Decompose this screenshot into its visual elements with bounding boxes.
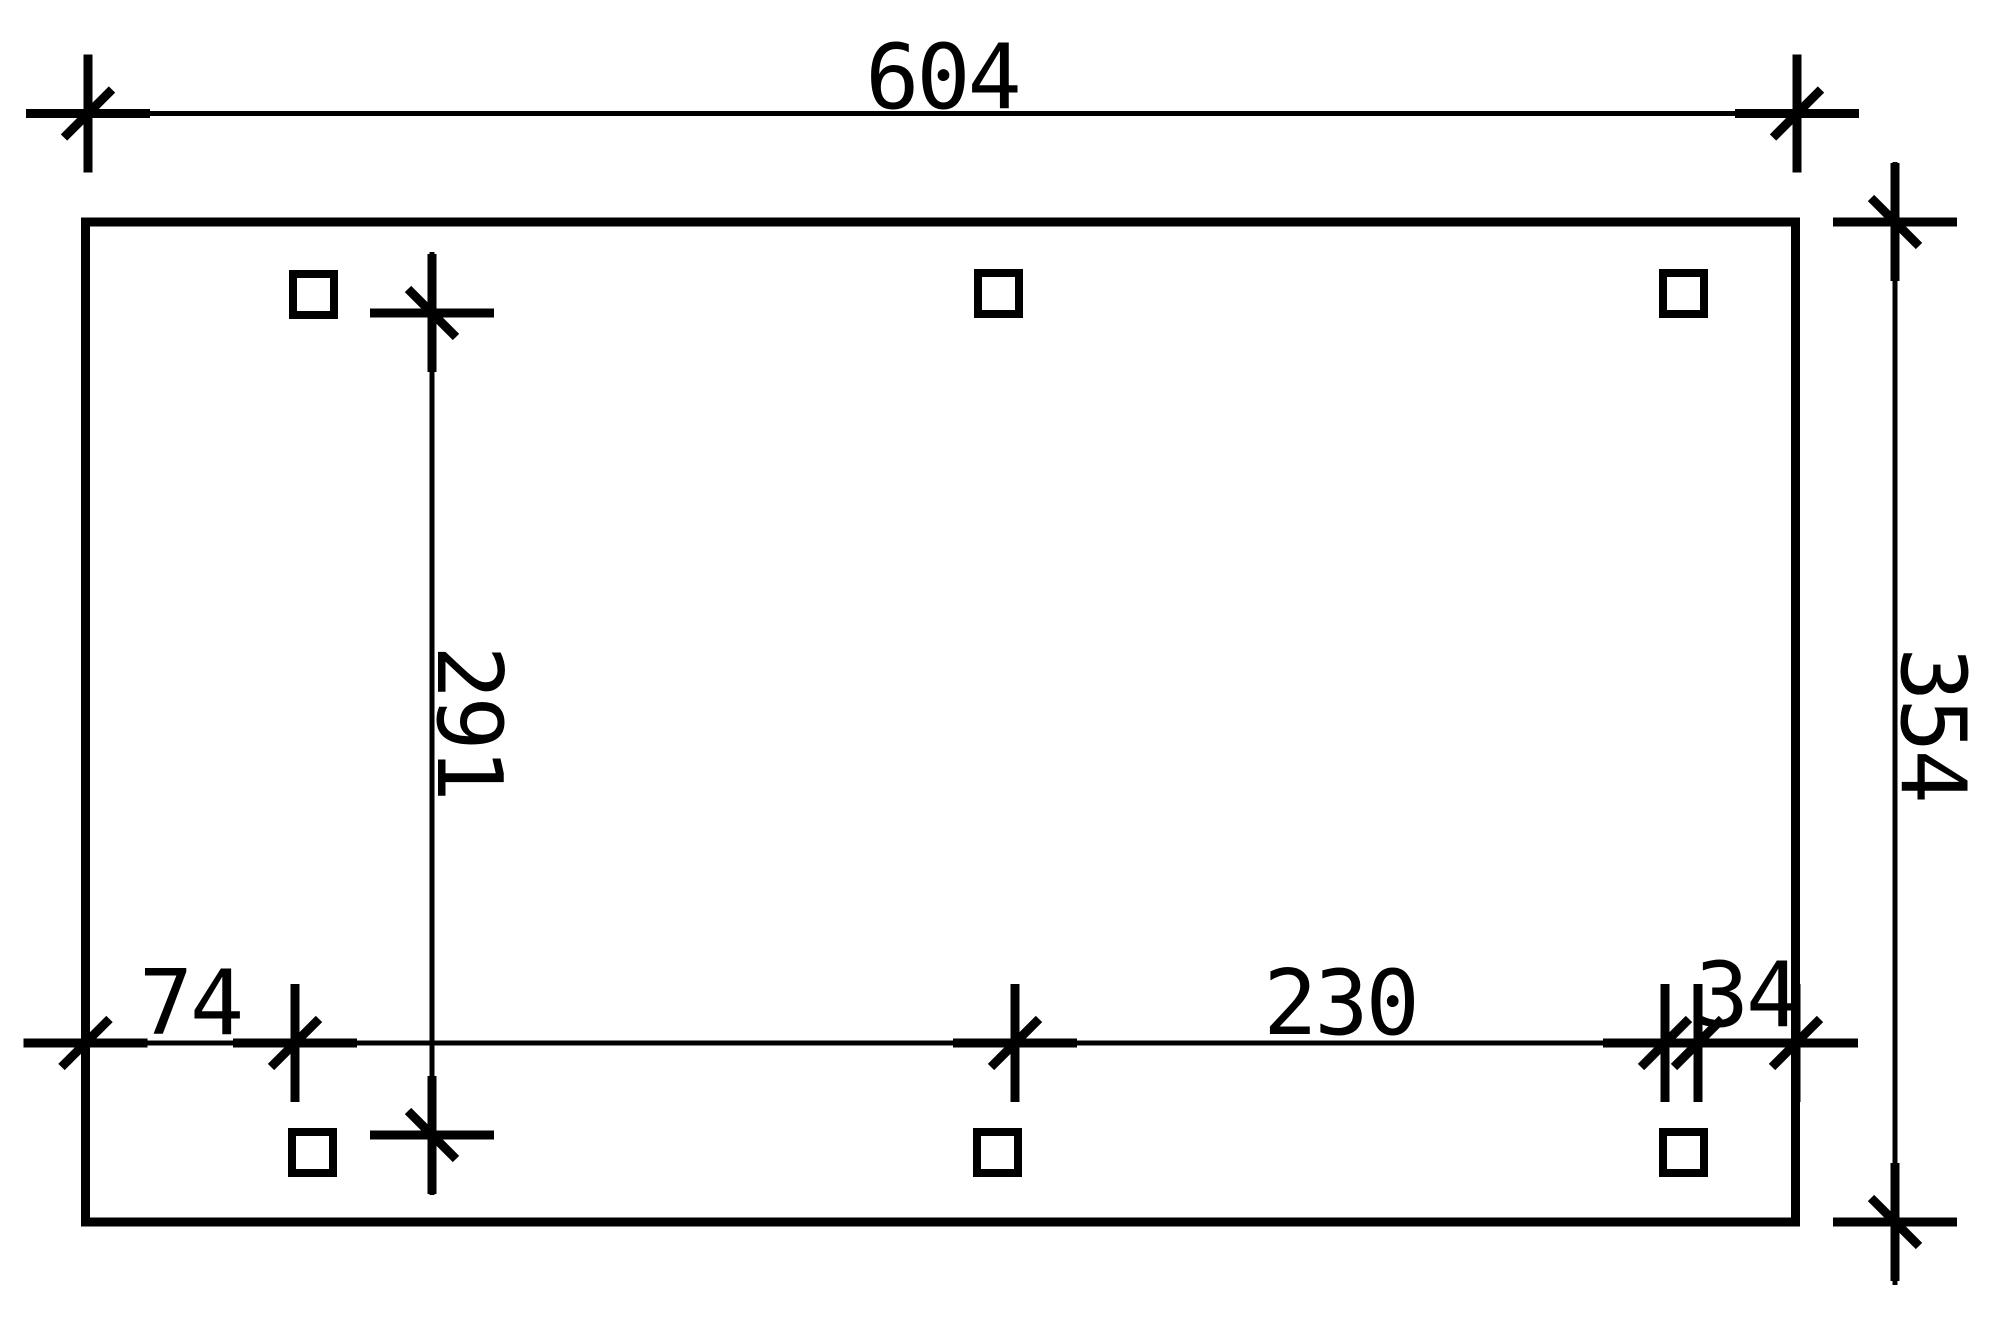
dim-label-total-width: 604 [865,25,1019,130]
dim-tick [370,1076,494,1194]
carport-outline-rect [86,222,1796,1222]
dim-tick [233,984,357,1102]
dimension-bottom-chain: 74 230 34 [24,943,1859,1102]
dimension-right-depth: 354 [1833,162,1985,1285]
dim-label-left-offset: 74 [139,951,241,1056]
post-square-top-left [293,274,334,315]
dim-tick [1833,163,1957,281]
dim-tick [24,984,148,1102]
dimension-top-width: 604 [26,25,1859,173]
dim-label-inner-vertical: 291 [416,645,521,799]
dim-label-total-depth: 354 [1880,647,1985,801]
dim-tick [1735,55,1859,173]
dim-label-post-span: 230 [1263,951,1417,1056]
carport-plan-page: 604 354 291 74 230 34 [0,0,2000,1333]
post-square-top-center [978,273,1019,314]
post-square-bottom-left [292,1132,333,1173]
dim-tick [1833,1163,1957,1281]
carport-plan-drawing: 604 354 291 74 230 34 [0,0,2000,1333]
dimension-inner-vertical: 291 [370,252,521,1195]
dim-tick [26,55,150,173]
dim-tick [370,254,494,372]
dim-tick [953,984,1077,1102]
post-square-bottom-center [977,1132,1018,1173]
dim-label-right-offset: 34 [1695,943,1797,1048]
post-square-top-right [1663,273,1704,314]
post-square-bottom-right [1663,1132,1704,1173]
